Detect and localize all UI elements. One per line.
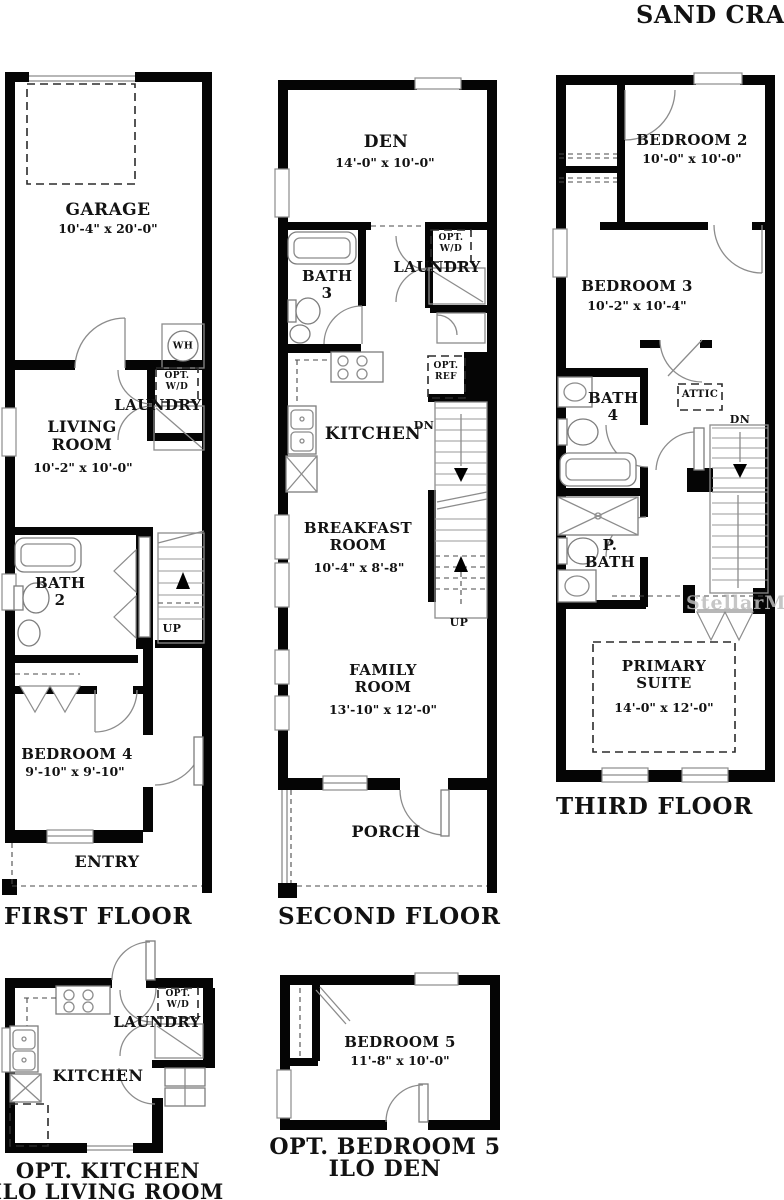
dishwasher-icon [286, 456, 317, 492]
bedroom4-label: BEDROOM 4 [21, 745, 133, 763]
kitchen-sink-icon [10, 1026, 38, 1072]
first-floor-label: FIRST FLOOR [4, 903, 192, 930]
stairs-up-label: UP [450, 616, 469, 629]
up-arrow-icon [454, 556, 468, 572]
opt-kitchen-label-line2: ILO LIVING ROOM [0, 1179, 224, 1200]
bathtub-icon [15, 538, 81, 572]
garage-room-label: GARAGE [66, 200, 151, 220]
stairs-dn-label: DN [730, 413, 750, 426]
second-floor-staircase [435, 402, 487, 618]
garage-door-opening [27, 76, 135, 184]
living-room-dims: 10'-2" x 10'-0" [33, 460, 132, 475]
breakfast-room-label: BREAKFAST ROOM [303, 520, 413, 554]
up-arrow-icon [176, 572, 190, 589]
laundry-label: LAUNDRY [113, 1013, 201, 1031]
bedroom2-dims: 10'-0" x 10'-0" [642, 151, 741, 166]
second-floor-label: SECOND FLOOR [278, 903, 501, 930]
bedroom4-dims: 9'-10" x 9'-10" [25, 764, 124, 779]
garage-door-overhead-dashed [27, 84, 135, 184]
breakfast-room-dims: 10'-4" x 8'-8" [314, 560, 405, 575]
bedroom3-label: BEDROOM 3 [581, 277, 693, 295]
stairs-up-label: UP [163, 622, 182, 635]
opt-bedroom5-label-line2: ILO DEN [329, 1156, 442, 1182]
window [277, 1070, 291, 1118]
plan-title: SAND CRANE [636, 0, 784, 29]
primary-bath-label: P. BATH [584, 537, 636, 571]
dishwasher-icon [10, 1074, 41, 1102]
laundry-label: LAUNDRY [393, 258, 481, 276]
bedroom5-dims: 11'-8" x 10'-0" [350, 1053, 449, 1068]
den-label: DEN [364, 132, 408, 152]
stairs-dn-label: DN [414, 419, 434, 432]
bedroom3-dims: 10'-2" x 10'-4" [587, 298, 686, 313]
window [415, 973, 458, 985]
primary-suite-label: PRIMARY SUITE [614, 658, 714, 692]
second-floor-plan-drawing [275, 78, 497, 898]
sink-counter-icon [558, 377, 592, 407]
opt-kitchen-plan-drawing [2, 941, 215, 1153]
watermark: StellarMLS [686, 592, 784, 614]
third-floor-label: THIRD FLOOR [556, 793, 753, 820]
opt-wd-label: OPT. W/D [430, 233, 472, 256]
toilet-icon [558, 538, 567, 564]
bedroom2-label: BEDROOM 2 [636, 131, 748, 149]
toilet-icon [288, 298, 320, 324]
opening-threshold [87, 1146, 133, 1150]
attic-label: ATTIC [682, 389, 718, 400]
porch-label: PORCH [351, 822, 420, 841]
family-room-label: FAMILY ROOM [343, 662, 423, 696]
laundry-label: LAUNDRY [114, 396, 202, 414]
opt-wd-label: OPT. W/D [158, 989, 198, 1012]
hall-closet [437, 313, 485, 343]
cabinet-icon [165, 1068, 205, 1106]
kitchen-label: KITCHEN [325, 424, 421, 444]
kitchen-counter-dashed [295, 360, 331, 402]
primary-suite-dims: 14'-0" x 12'-0" [614, 700, 713, 715]
sink-icon [18, 620, 40, 646]
family-room-dims: 13'-10" x 12'-0" [329, 702, 437, 717]
stove-icon [56, 986, 110, 1014]
bathtub-icon [560, 453, 636, 486]
living-room-label: LIVING ROOM [42, 418, 122, 454]
opt-ref-label: OPT. REF [428, 361, 464, 384]
sink-counter-icon [558, 570, 596, 602]
bath2-label: BATH 2 [35, 575, 85, 609]
bathtub-icon [288, 232, 356, 264]
bath3-label: BATH 3 [302, 268, 352, 302]
kitchen-sink-icon [288, 406, 316, 454]
sink-icon [290, 325, 310, 343]
opt-bedroom5-plan-drawing [277, 973, 500, 1130]
kitchen-label: KITCHEN [53, 1066, 144, 1085]
bedroom5-label: BEDROOM 5 [344, 1033, 456, 1051]
toilet-icon [558, 419, 567, 445]
down-arrow-icon [454, 468, 468, 482]
bath4-label: BATH 4 [588, 390, 638, 424]
opt-wd-label: OPT. W/D [157, 371, 197, 394]
shower-icon [558, 497, 638, 535]
entry-label: ENTRY [75, 852, 140, 871]
down-arrow-icon [733, 464, 747, 478]
stove-icon [331, 352, 383, 382]
opt-pantry-dashed-box [10, 1104, 48, 1146]
floor-plan-sheet: SAND CRANE GARAGE 10'-4" x 20'-0" WH OPT… [0, 0, 784, 1200]
kitchen-counter-dashed [24, 998, 56, 1026]
water-heater-label: WH [173, 341, 193, 352]
garage-dims: 10'-4" x 20'-0" [58, 221, 157, 236]
den-dims: 14'-0" x 10'-0" [335, 155, 434, 170]
